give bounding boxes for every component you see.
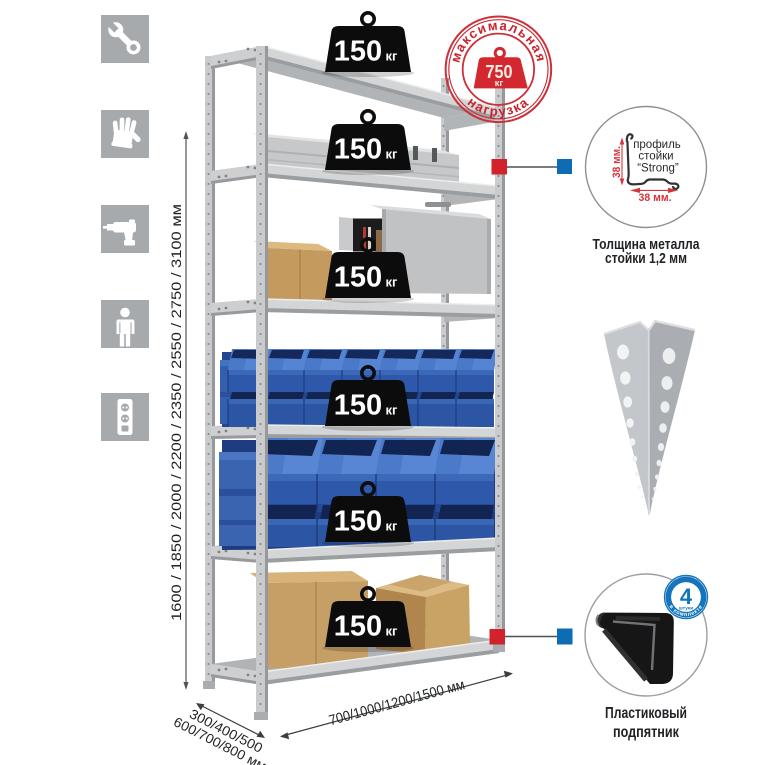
svg-text:“Strong”: “Strong” <box>637 163 679 175</box>
svg-text:кг: кг <box>495 78 504 89</box>
svg-text:подпятник: подпятник <box>613 724 679 741</box>
svg-text:38 мм.: 38 мм. <box>611 146 623 178</box>
svg-text:4: 4 <box>680 584 693 609</box>
svg-text:38 мм.: 38 мм. <box>639 192 672 204</box>
svg-text:стойки: стойки <box>638 151 673 163</box>
svg-text:штуки: штуки <box>679 607 694 612</box>
svg-text:Пластиковый: Пластиковый <box>605 705 687 722</box>
svg-text:1600 / 1850 / 2000 / 2200 / 23: 1600 / 1850 / 2000 / 2200 / 2350 / 2550 … <box>168 204 184 621</box>
svg-text:профиль: профиль <box>633 139 681 151</box>
svg-text:стойки 1,2 мм: стойки 1,2 мм <box>605 251 687 267</box>
